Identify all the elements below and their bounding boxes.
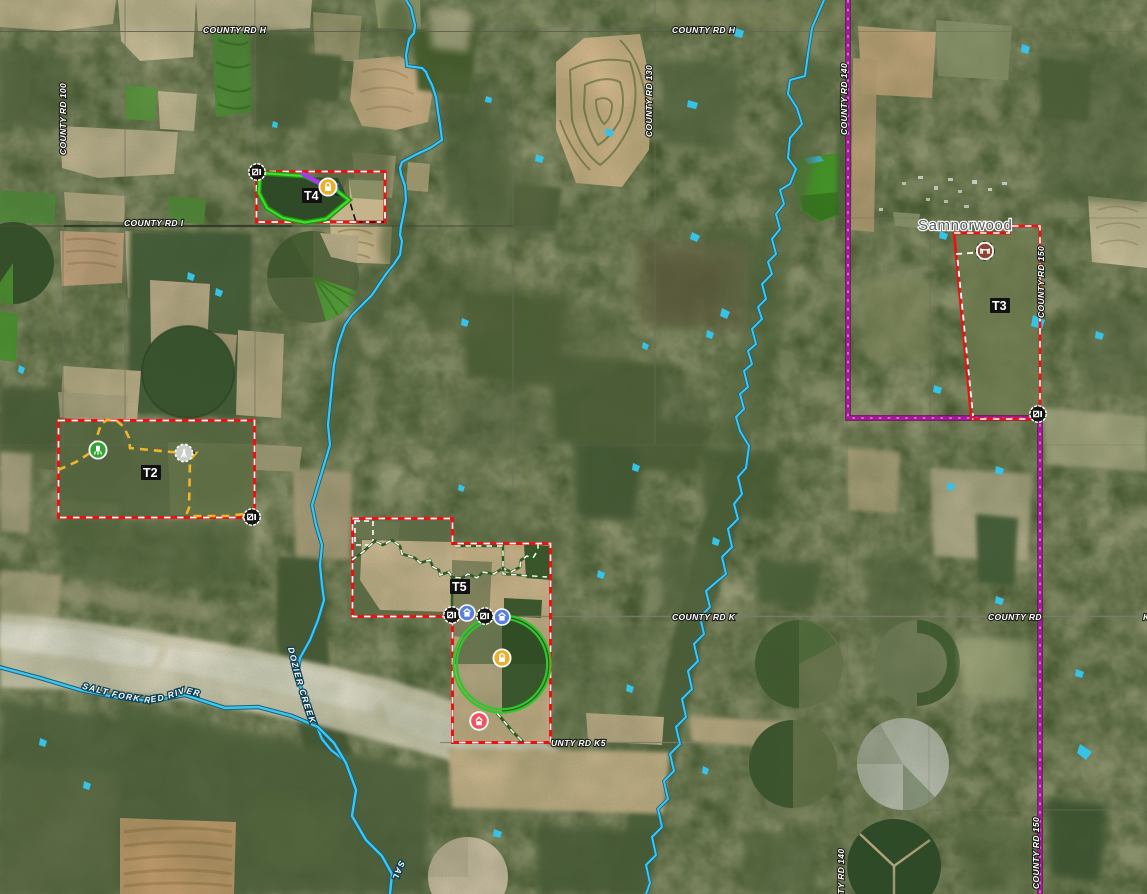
svg-text:T3: T3	[992, 299, 1007, 313]
svg-text:COUNTY RD 130: COUNTY RD 130	[644, 65, 654, 137]
svg-text:T4: T4	[304, 189, 319, 203]
svg-text:COUNTY RD 140: COUNTY RD 140	[839, 63, 849, 135]
svg-text:K: K	[1143, 612, 1147, 622]
svg-text:TY RD 140: TY RD 140	[836, 849, 846, 894]
svg-text:COUNTY RD 150: COUNTY RD 150	[1036, 246, 1046, 318]
svg-text:COUNTY RD 150: COUNTY RD 150	[1031, 817, 1041, 889]
svg-text:COUNTY RD: COUNTY RD	[988, 612, 1042, 622]
svg-text:COUNTY RD 100: COUNTY RD 100	[58, 83, 68, 155]
svg-text:UNTY RD K5: UNTY RD K5	[551, 738, 606, 748]
svg-text:COUNTY RD K: COUNTY RD K	[672, 612, 736, 622]
svg-text:T2: T2	[143, 466, 158, 480]
svg-text:COUNTY RD I: COUNTY RD I	[124, 218, 184, 228]
svg-text:T5: T5	[452, 580, 467, 594]
svg-text:Samnorwood: Samnorwood	[918, 217, 1012, 234]
svg-text:COUNTY RD H: COUNTY RD H	[203, 25, 267, 35]
svg-text:COUNTY RD H: COUNTY RD H	[672, 25, 736, 35]
